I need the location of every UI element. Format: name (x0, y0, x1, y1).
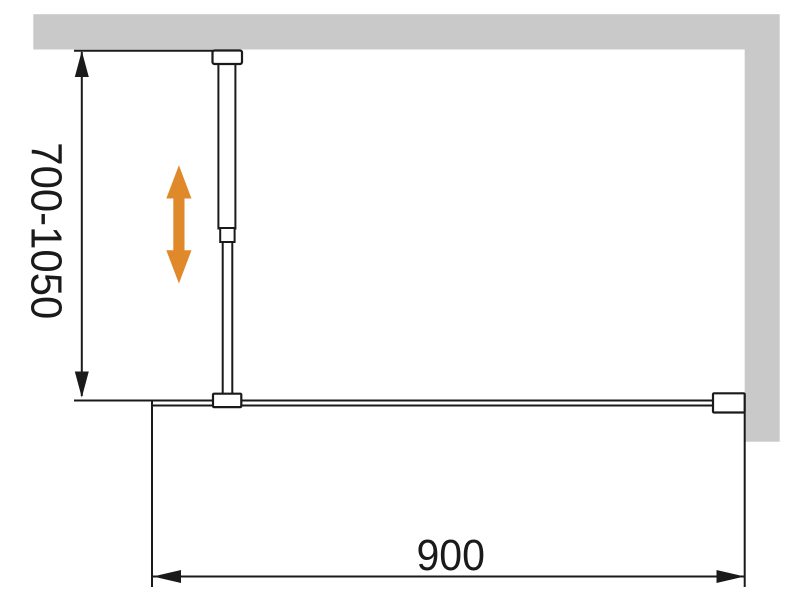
svg-text:700-1050: 700-1050 (21, 142, 69, 319)
svg-text:900: 900 (416, 532, 485, 580)
